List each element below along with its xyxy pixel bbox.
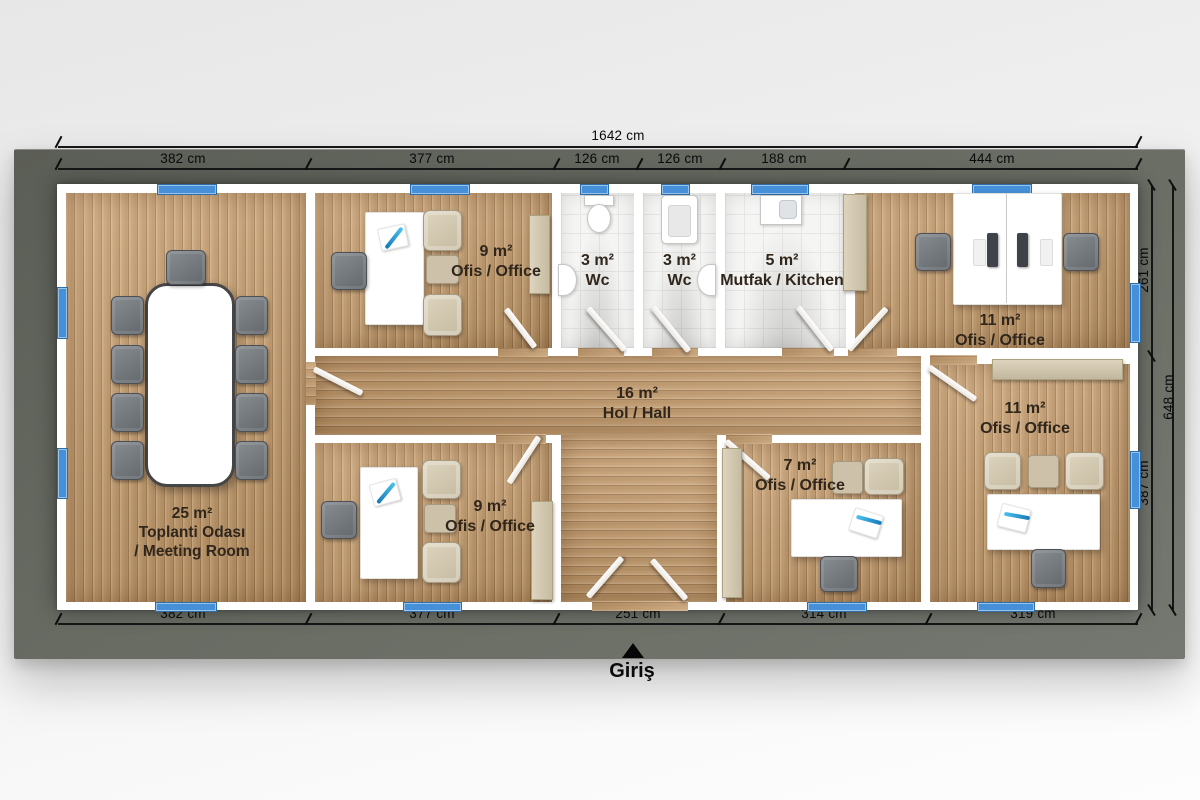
chair [235, 296, 268, 335]
window [57, 448, 68, 499]
dim-top-0: 382 cm [143, 151, 223, 166]
keyboard [973, 239, 986, 266]
door-opening [652, 348, 698, 357]
office-chair [915, 233, 951, 271]
entrance-opening [592, 601, 688, 611]
room-area: 9 m² [410, 497, 570, 517]
keyboard [1040, 239, 1053, 266]
squat-toilet-inner [668, 205, 691, 237]
window [807, 602, 867, 612]
guest-chair [422, 460, 461, 499]
dim-top-1: 377 cm [392, 151, 472, 166]
dim-total-top: 1642 cm [538, 128, 698, 143]
door-opening [782, 348, 834, 357]
room-name: Wc [561, 271, 634, 291]
dimension-line-total-top [58, 146, 1138, 148]
room-name: Hol / Hall [557, 404, 717, 424]
office-chair [820, 556, 858, 592]
room-name: Ofis / Office [416, 262, 576, 282]
office-chair [321, 501, 357, 539]
dim-top-3: 126 cm [640, 151, 720, 166]
label-kitchen: 5 m² Mutfak / Kitchen [712, 251, 852, 291]
window [751, 184, 809, 195]
room-area: 3 m² [561, 251, 634, 271]
door-opening [498, 348, 548, 357]
window [1130, 451, 1141, 509]
dim-right-total: 648 cm [1161, 357, 1177, 437]
label-hall: 16 m² Hol / Hall [557, 384, 717, 424]
chair [235, 345, 268, 384]
room-area: 7 m² [720, 456, 880, 476]
window [1130, 283, 1141, 343]
entrance-label: Giriş [572, 660, 692, 683]
room-name: Ofis / Office [720, 476, 880, 496]
entrance-arrow-icon [622, 643, 644, 658]
guest-chair [422, 542, 461, 583]
room-area: 5 m² [712, 251, 852, 271]
chair [235, 441, 268, 480]
room-name: Toplanti Odası [102, 523, 282, 542]
office-chair [331, 252, 367, 290]
room-area: 9 m² [416, 242, 576, 262]
label-office-bottom-right: 11 m² Ofis / Office [945, 399, 1105, 439]
door-opening [578, 348, 624, 357]
window [155, 602, 217, 612]
guest-chair [984, 452, 1021, 490]
room-name: Ofis / Office [945, 419, 1105, 439]
kitchen-sink-bowl [779, 200, 797, 219]
label-office-7: 7 m² Ofis / Office [720, 456, 880, 496]
window [410, 184, 470, 195]
window [157, 184, 217, 195]
label-wc-2: 3 m² Wc [643, 251, 716, 291]
room-name: Mutfak / Kitchen [712, 271, 852, 291]
room-name: Wc [643, 271, 716, 291]
room-area: 11 m² [920, 311, 1080, 331]
chair [111, 296, 144, 335]
monitor [987, 233, 998, 267]
dim-top-2: 126 cm [557, 151, 637, 166]
guest-chair [423, 294, 462, 336]
chair [111, 393, 144, 432]
tick [1135, 136, 1143, 148]
office-chair [1031, 549, 1066, 588]
floor-plan-canvas: 1642 cm 382 cm 377 cm 126 cm 126 cm 188 … [0, 0, 1200, 800]
label-wc-1: 3 m² Wc [561, 251, 634, 291]
chair [111, 441, 144, 480]
label-office-top: 9 m² Ofis / Office [416, 242, 576, 282]
label-office-top-right: 11 m² Ofis / Office [920, 311, 1080, 351]
side-table [1028, 455, 1059, 488]
monitor [1017, 233, 1028, 267]
room-area: 11 m² [945, 399, 1105, 419]
dimension-line-bottom [58, 623, 1138, 625]
shelf [992, 359, 1123, 380]
guest-chair [1065, 452, 1104, 490]
window [580, 184, 609, 195]
label-office-bottom: 9 m² Ofis / Office [410, 497, 570, 537]
floor-hall-vertical [561, 435, 717, 602]
door-opening [848, 348, 897, 357]
chair [111, 345, 144, 384]
room-name: Ofis / Office [410, 517, 570, 537]
room-area: 25 m² [102, 504, 282, 523]
toilet-bowl [587, 204, 611, 233]
room-name-en: / Meeting Room [102, 542, 282, 561]
window [661, 184, 690, 195]
door-opening [930, 355, 977, 365]
desk [791, 499, 902, 557]
office-chair [1063, 233, 1099, 271]
dim-top-4: 188 cm [744, 151, 824, 166]
window [57, 287, 68, 339]
dimension-line-top-segments [58, 168, 1138, 170]
room-area: 16 m² [557, 384, 717, 404]
chair [235, 393, 268, 432]
desk-divider [1006, 193, 1007, 303]
window [403, 602, 462, 612]
chair [166, 250, 206, 285]
label-meeting-room: 25 m² Toplanti Odası / Meeting Room [102, 504, 282, 561]
meeting-table [145, 283, 235, 487]
room-area: 3 m² [643, 251, 716, 271]
window [977, 602, 1035, 612]
dim-top-5: 444 cm [952, 151, 1032, 166]
room-name: Ofis / Office [920, 331, 1080, 351]
